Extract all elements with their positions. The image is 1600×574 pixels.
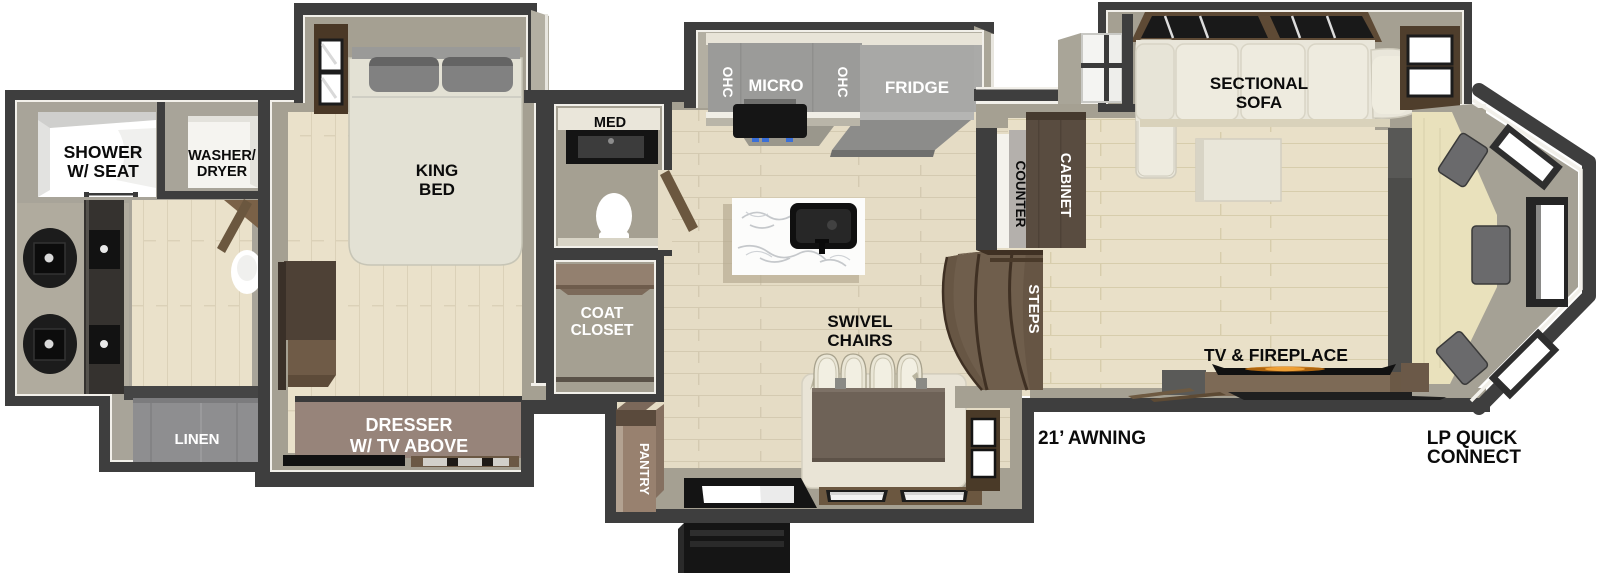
svg-text:OHC: OHC	[835, 66, 851, 97]
svg-text:W/ TV ABOVE: W/ TV ABOVE	[350, 436, 468, 456]
svg-text:DRYER: DRYER	[197, 164, 248, 180]
svg-text:SHOWER: SHOWER	[64, 142, 143, 162]
svg-text:COUNTER: COUNTER	[1013, 161, 1028, 228]
svg-text:DRESSER: DRESSER	[365, 415, 452, 435]
svg-text:BED: BED	[419, 180, 455, 199]
svg-text:OHC: OHC	[720, 66, 736, 97]
svg-text:SECTIONAL: SECTIONAL	[1210, 74, 1308, 93]
svg-text:21’ AWNING: 21’ AWNING	[1038, 428, 1146, 449]
svg-text:CLOSET: CLOSET	[571, 322, 634, 339]
svg-text:MICRO: MICRO	[749, 77, 804, 95]
svg-text:TV & FIREPLACE: TV & FIREPLACE	[1204, 345, 1348, 365]
svg-text:SOFA: SOFA	[1236, 93, 1282, 112]
svg-text:COAT: COAT	[581, 305, 624, 322]
svg-text:SWIVEL: SWIVEL	[827, 312, 892, 331]
svg-text:PANTRY: PANTRY	[637, 443, 652, 495]
svg-text:STEPS: STEPS	[1025, 284, 1042, 333]
svg-text:LINEN: LINEN	[175, 431, 220, 448]
svg-text:LP QUICK: LP QUICK	[1427, 428, 1518, 449]
svg-text:CABINET: CABINET	[1057, 153, 1073, 218]
svg-text:WASHER/: WASHER/	[188, 148, 256, 164]
svg-text:CHAIRS: CHAIRS	[827, 331, 892, 350]
svg-text:FRIDGE: FRIDGE	[885, 78, 949, 97]
svg-text:MED: MED	[594, 115, 626, 131]
svg-text:CONNECT: CONNECT	[1427, 447, 1521, 468]
svg-text:W/ SEAT: W/ SEAT	[67, 161, 139, 181]
svg-text:KING: KING	[416, 161, 459, 180]
